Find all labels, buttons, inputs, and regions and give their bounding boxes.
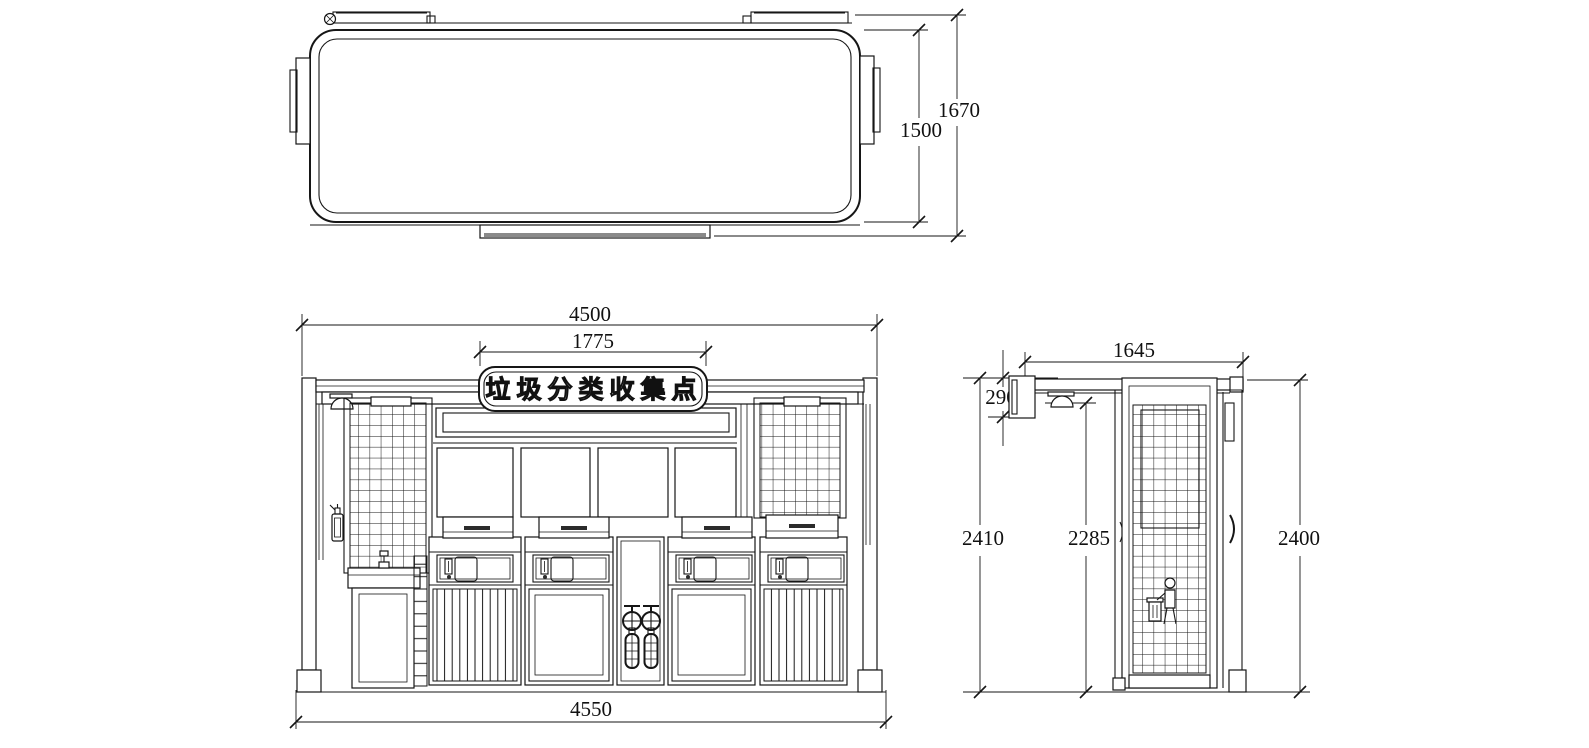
dim-side-1645: 1645 <box>1019 338 1249 380</box>
dim-label-plan-inner-width: 1500 <box>900 118 942 142</box>
dim-front-4550: 4550 <box>290 690 892 729</box>
window-bay-1 <box>437 448 513 517</box>
side-tab-right <box>860 56 880 144</box>
hopper-trays <box>443 515 838 538</box>
bin-unit-3 <box>668 537 755 685</box>
roof-top-vent-left <box>333 12 435 23</box>
roof-top-vent-right <box>743 12 848 23</box>
foot-right <box>1229 670 1246 692</box>
vent-right <box>784 397 820 406</box>
lock-dot <box>543 575 547 579</box>
sign-top-projection <box>480 225 710 238</box>
front-elevation: 4500 1775 4550 <box>290 302 892 729</box>
mesh-panel-right <box>754 397 846 518</box>
bin-unit-1 <box>429 537 521 685</box>
camera-top-icon <box>325 14 336 25</box>
dim-label-side-overall-depth: 1645 <box>1113 338 1155 362</box>
sink-station <box>348 551 427 688</box>
lock-dot <box>447 575 451 579</box>
lock-dot <box>778 575 782 579</box>
dim-label-side-height-left: 2410 <box>962 526 1004 550</box>
roof-outline <box>310 30 860 222</box>
dim-side-2285: 2285 <box>1045 397 1110 698</box>
rear-vent <box>1225 403 1234 441</box>
banner-panel <box>436 408 736 437</box>
vent-left <box>371 397 411 406</box>
bin-unit-2 <box>525 537 613 685</box>
technical-drawing: 1500 1670 4500 1775 4550 <box>0 0 1589 748</box>
rear-wall <box>1217 390 1246 692</box>
window-row <box>433 443 737 517</box>
dim-label-side-height-mid: 2285 <box>1068 526 1110 550</box>
roof-inner-outline <box>319 39 851 213</box>
side-tab-left <box>290 58 310 144</box>
dim-front-1775: 1775 <box>474 329 712 366</box>
dim-side-2400: 2400 <box>1247 374 1320 698</box>
counter <box>348 568 420 588</box>
dim-label-front-overall-top: 4500 <box>569 302 611 326</box>
lock-dot <box>686 575 690 579</box>
dim-label-front-overall-bottom: 4550 <box>570 697 612 721</box>
window-bay-4 <box>675 448 736 517</box>
sign-text: 垃圾分类收集点 <box>485 375 702 404</box>
side-elevation: 1645 290 2410 2285 2400 <box>962 338 1320 698</box>
camera-dome-side-icon <box>1048 392 1074 407</box>
dim-label-plan-overall-width: 1670 <box>938 98 980 122</box>
slat-grille <box>433 589 517 681</box>
dim-label-side-height-right: 2400 <box>1278 526 1320 550</box>
door-handle-right[interactable] <box>1230 515 1234 543</box>
bin-unit-4 <box>760 537 847 685</box>
dim-plan-1500: 1500 <box>864 24 942 228</box>
sign-board: 垃圾分类收集点 <box>479 367 707 411</box>
plan-view <box>290 12 880 238</box>
ladder-strip <box>414 556 427 686</box>
dim-label-front-sign-width: 1775 <box>572 329 614 353</box>
slat-grille <box>764 589 843 681</box>
technical-drawing-canvas: 1500 1670 4500 1775 4550 <box>0 0 1589 748</box>
sign-board-side <box>1009 376 1035 418</box>
center-column <box>617 537 664 685</box>
pier-lines <box>741 404 747 517</box>
cabinet-door[interactable] <box>352 588 414 688</box>
fire-extinguisher-icon[interactable] <box>330 504 343 541</box>
mesh-panel-left <box>344 397 432 573</box>
window-bay-3 <box>598 448 668 517</box>
foot-left <box>1113 678 1125 690</box>
mesh-column-side <box>1113 378 1217 690</box>
base-band <box>1129 675 1210 688</box>
window-bay-2 <box>521 448 590 517</box>
post-left <box>297 378 321 692</box>
